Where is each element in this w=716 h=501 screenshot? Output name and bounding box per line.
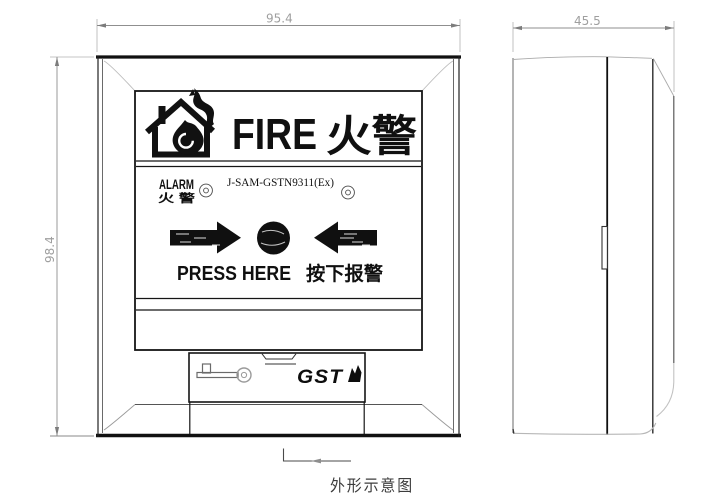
dim-arrow-down-icon	[55, 427, 59, 436]
dim-width-label: 95.4	[266, 12, 293, 26]
alarm-label-cn: 火 警	[158, 191, 196, 205]
dim-depth-label: 45.5	[574, 14, 601, 28]
fire-label-en: FIRE	[232, 110, 317, 159]
side-back-corner	[657, 363, 674, 417]
dim-arrow-right-icon	[451, 23, 460, 27]
bevel-bottom-left	[104, 405, 135, 431]
dimension-depth: 45.5	[513, 14, 674, 92]
dim-height-label: 98.4	[43, 236, 57, 263]
bevel-top-right	[422, 61, 453, 91]
outline-drawing-svg: 95.4 98.4 45.5	[0, 0, 716, 501]
front-view: FIRE 火警 ALARM 火 警 J-SAM-GSTN9311(Ex) PRE…	[96, 56, 461, 437]
side-view	[513, 57, 674, 435]
dimension-width: 95.4	[97, 12, 460, 53]
side-bottom-edge	[514, 423, 656, 434]
press-label-en: PRESS HERE	[177, 263, 291, 285]
dim-arrow-left-icon	[97, 23, 106, 27]
drawing-canvas: 95.4 98.4 45.5	[0, 0, 716, 501]
bevel-bottom-right	[422, 405, 453, 431]
alarm-label-en: ALARM	[159, 177, 194, 192]
side-chamfer	[653, 59, 674, 97]
model-label: J-SAM-GSTN9311(Ex)	[227, 175, 334, 189]
leader-arrow-icon	[311, 459, 321, 464]
brand-label: GST	[297, 366, 344, 388]
fire-label-cn: 火警	[326, 113, 417, 161]
bevel-top-left	[104, 61, 135, 91]
side-latch-tab	[602, 227, 607, 270]
press-label-cn: 按下报警	[306, 262, 383, 285]
dimension-height: 98.4	[43, 57, 94, 436]
side-top-edge	[513, 57, 652, 60]
dim-arrow-up-icon	[55, 57, 59, 66]
leader-mark	[284, 449, 352, 464]
drawing-caption: 外形示意图	[330, 476, 414, 495]
dim-arrow-left-icon	[513, 26, 522, 30]
press-button-icon	[257, 222, 290, 255]
dim-arrow-right-icon	[665, 26, 674, 30]
